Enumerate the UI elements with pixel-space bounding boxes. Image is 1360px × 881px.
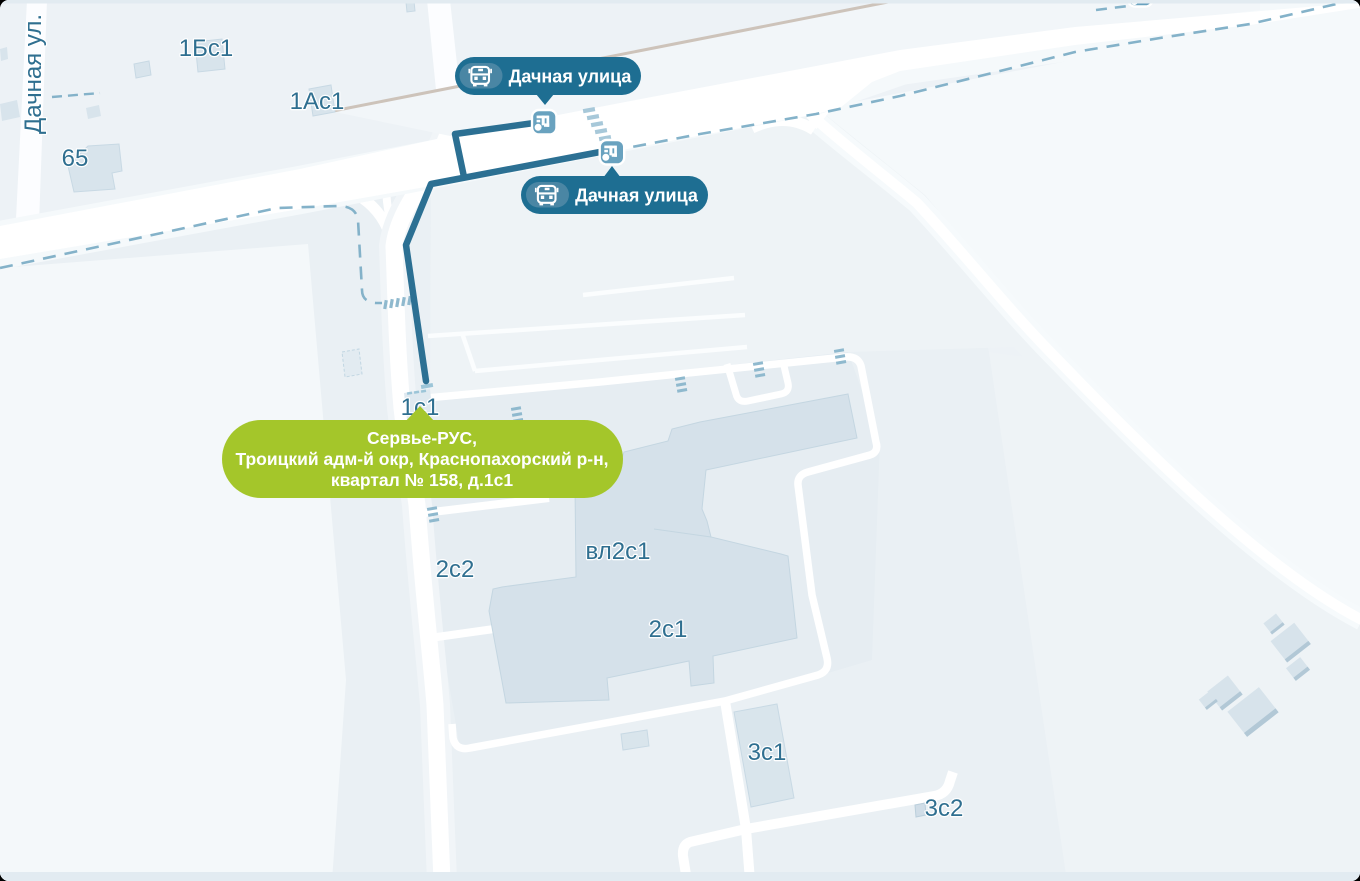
svg-text:Дачная ул.: Дачная ул. [20, 14, 47, 134]
svg-text:квартал № 158, д.1с1: квартал № 158, д.1с1 [331, 470, 513, 490]
svg-text:2с2: 2с2 [436, 556, 475, 583]
svg-text:2с1: 2с1 [649, 616, 688, 643]
svg-text:1Ас1: 1Ас1 [290, 88, 345, 115]
svg-text:Троицкий адм-й окр, Краснопахо: Троицкий адм-й окр, Краснопахорский р-н, [235, 449, 608, 469]
svg-text:Дачная улица: Дачная улица [575, 186, 699, 206]
svg-text:65: 65 [62, 145, 89, 172]
svg-text:Дачная улица: Дачная улица [509, 67, 633, 87]
svg-text:вл2с1: вл2с1 [586, 538, 651, 565]
svg-text:3с1: 3с1 [748, 739, 787, 766]
svg-text:Сервье-РУС,: Сервье-РУС, [367, 428, 477, 448]
svg-text:3с2: 3с2 [925, 795, 964, 822]
svg-text:1Бс1: 1Бс1 [179, 35, 233, 62]
